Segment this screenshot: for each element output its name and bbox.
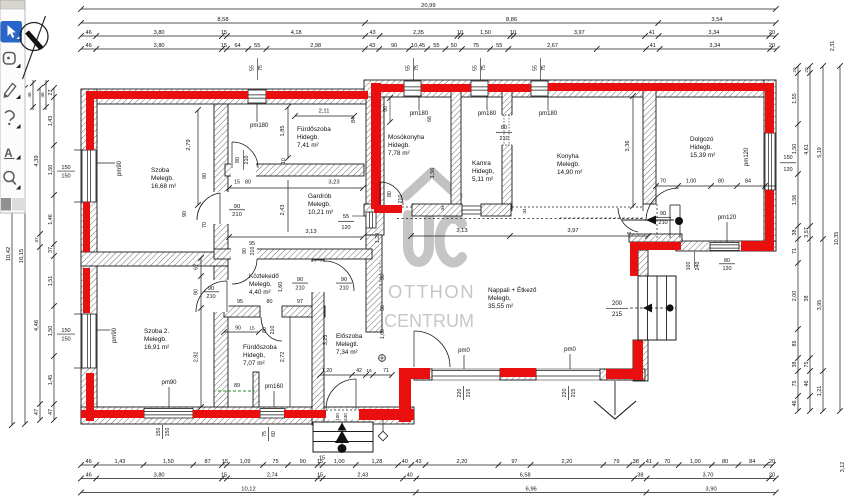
svg-text:85: 85 [792,341,798,347]
svg-text:55: 55 [406,65,412,71]
svg-text:210: 210 [339,286,348,292]
svg-text:3,97: 3,97 [574,30,585,36]
svg-text:1,43: 1,43 [48,116,54,127]
svg-text:3,13: 3,13 [456,228,467,234]
svg-text:15,39 m²: 15,39 m² [690,152,715,159]
svg-text:55: 55 [533,65,539,71]
svg-text:210: 210 [270,326,276,335]
svg-text:1,50: 1,50 [48,165,54,176]
svg-text:215: 215 [612,312,623,318]
svg-text:20,99: 20,99 [421,3,436,9]
svg-text:15: 15 [221,30,227,36]
svg-text:38: 38 [792,362,798,368]
svg-text:20: 20 [804,67,809,73]
svg-text:38: 38 [633,459,639,465]
svg-text:2,92: 2,92 [194,352,200,363]
svg-text:14,90 m²: 14,90 m² [557,169,582,176]
svg-text:20: 20 [769,459,775,465]
svg-text:120: 120 [341,225,350,231]
svg-text:87: 87 [204,459,210,465]
svg-text:90: 90 [660,211,666,217]
svg-text:pm0: pm0 [458,348,470,354]
svg-text:CENTRUM: CENTRUM [384,311,474,331]
svg-text:10,15: 10,15 [19,249,25,264]
svg-text:3,34: 3,34 [709,43,720,49]
svg-text:50: 50 [380,305,386,311]
svg-text:1,20: 1,20 [322,368,333,374]
svg-text:1,00: 1,00 [690,459,701,465]
svg-text:1,28: 1,28 [371,459,382,465]
svg-text:41: 41 [646,459,652,465]
svg-text:43: 43 [369,30,375,36]
svg-text:20: 20 [769,43,775,49]
svg-text:80: 80 [235,157,241,163]
svg-text:Előszoba: Előszoba [336,333,363,340]
svg-text:2,43: 2,43 [357,472,368,478]
svg-text:80: 80 [501,125,507,131]
svg-text:46: 46 [85,459,91,465]
svg-text:150: 150 [61,174,70,180]
svg-text:100: 100 [686,262,692,271]
svg-text:210: 210 [295,286,304,292]
svg-text:15: 15 [249,326,255,332]
svg-text:10,45: 10,45 [411,43,425,49]
svg-text:215: 215 [466,389,472,398]
svg-text:15: 15 [317,472,323,478]
svg-text:150: 150 [156,428,162,437]
svg-text:90: 90 [202,173,208,179]
svg-text:4,18: 4,18 [291,30,302,36]
svg-text:7,07 m²: 7,07 m² [243,360,265,367]
svg-text:3,34: 3,34 [708,30,719,36]
svg-text:3,90: 3,90 [705,486,716,492]
svg-text:89: 89 [234,383,240,389]
svg-text:pm90: pm90 [161,380,177,386]
svg-text:100: 100 [335,413,340,421]
svg-text:38: 38 [804,296,810,302]
svg-text:2,11: 2,11 [319,109,330,115]
svg-text:38: 38 [637,472,643,478]
svg-text:pm180: pm180 [250,123,269,129]
svg-text:3,80: 3,80 [154,30,165,36]
svg-text:20: 20 [769,472,775,478]
svg-text:80: 80 [718,179,724,185]
svg-text:2,72: 2,72 [280,352,286,363]
svg-text:38: 38 [792,230,798,236]
svg-text:240: 240 [343,413,348,421]
svg-text:1,45: 1,45 [48,375,54,386]
svg-text:1,55: 1,55 [792,93,798,104]
svg-text:Gardrób: Gardrób [308,193,332,200]
svg-text:66: 66 [427,116,433,122]
svg-text:10: 10 [281,158,287,164]
svg-text:80: 80 [245,180,251,186]
svg-text:4,40 m²: 4,40 m² [249,289,271,296]
svg-text:Kamra: Kamra [472,160,491,167]
svg-text:Szoba: Szoba [151,167,170,174]
svg-text:40: 40 [407,472,413,478]
svg-text:15: 15 [221,472,227,478]
svg-text:4,61: 4,61 [804,144,810,155]
svg-text:1,51: 1,51 [48,276,54,287]
svg-text:70: 70 [660,179,666,185]
svg-text:0: 0 [627,231,633,234]
svg-text:90: 90 [194,289,200,295]
svg-text:10: 10 [457,30,463,36]
svg-text:90: 90 [234,204,240,210]
svg-text:10,21 m²: 10,21 m² [308,209,333,216]
svg-text:3,97: 3,97 [567,228,578,234]
svg-text:pm120: pm120 [718,215,737,221]
svg-text:210: 210 [658,220,667,226]
svg-text:15: 15 [221,43,227,49]
svg-text:1,46: 1,46 [48,214,54,225]
svg-text:1,60: 1,60 [278,282,284,293]
svg-text:90: 90 [391,43,397,49]
svg-text:75: 75 [262,431,268,437]
svg-text:3,13: 3,13 [305,229,316,235]
svg-text:Konyha: Konyha [557,153,579,160]
svg-text:210: 210 [499,136,508,142]
svg-text:pm160: pm160 [265,384,284,390]
svg-text:Szoba 2.: Szoba 2. [144,328,169,335]
svg-text:2,20: 2,20 [561,459,572,465]
svg-text:Dolgozó: Dolgozó [690,136,714,143]
svg-text:10: 10 [510,30,516,36]
svg-text:75: 75 [272,459,278,465]
svg-text:75: 75 [258,65,264,71]
svg-text:210: 210 [250,247,256,256]
svg-text:pm90: pm90 [117,160,123,176]
svg-text:2,43: 2,43 [280,205,286,216]
svg-text:4,46: 4,46 [34,320,40,331]
svg-text:16,91 m²: 16,91 m² [144,344,169,351]
svg-text:75: 75 [414,65,420,71]
svg-text:1,09: 1,09 [240,459,251,465]
svg-text:71: 71 [792,248,798,254]
svg-text:37: 37 [48,247,54,253]
svg-text:46: 46 [804,381,810,387]
svg-text:1,00: 1,00 [334,459,345,465]
svg-text:75: 75 [541,65,547,71]
svg-text:Hidegb.: Hidegb. [690,144,712,151]
svg-text:200: 200 [612,301,623,307]
svg-text:80: 80 [262,327,268,333]
svg-text:210: 210 [232,212,242,218]
svg-text:210: 210 [398,195,404,204]
svg-text:75: 75 [481,65,487,71]
svg-text:1,29: 1,29 [375,233,381,243]
svg-text:47: 47 [34,409,40,415]
svg-text:42: 42 [356,368,362,374]
svg-text:215: 215 [571,389,577,398]
svg-text:46: 46 [40,92,46,98]
svg-text:8,86: 8,86 [506,17,517,23]
svg-text:3,70: 3,70 [702,472,713,478]
svg-text:1,50: 1,50 [480,30,491,36]
svg-text:1,43: 1,43 [114,459,125,465]
svg-text:80: 80 [387,191,393,197]
svg-text:20: 20 [792,67,797,73]
svg-text:80: 80 [722,459,728,465]
svg-text:8,58: 8,58 [217,17,228,23]
svg-text:90: 90 [242,248,248,254]
svg-text:90: 90 [208,286,214,292]
svg-text:84: 84 [749,459,755,465]
svg-text:3,25: 3,25 [323,335,329,346]
svg-text:2,35: 2,35 [413,30,424,36]
svg-text:46: 46 [85,30,91,36]
svg-text:1,56: 1,56 [792,195,798,206]
svg-text:90: 90 [300,459,306,465]
svg-text:210: 210 [244,156,250,165]
svg-text:1,85: 1,85 [280,126,286,137]
svg-text:5,19: 5,19 [817,147,823,158]
svg-text:75: 75 [473,43,479,49]
svg-text:Hidegb,: Hidegb, [472,168,494,175]
svg-text:1,50: 1,50 [792,144,798,155]
svg-text:90: 90 [380,274,386,280]
svg-text:pm120: pm120 [744,147,750,166]
svg-text:240: 240 [695,262,701,271]
svg-text:5,11 m²: 5,11 m² [472,176,493,183]
svg-text:34: 34 [522,208,528,214]
svg-text:3,80: 3,80 [154,43,165,49]
svg-text:3,57: 3,57 [804,227,810,238]
svg-text:Melegb.: Melegb. [308,201,331,208]
svg-text:150: 150 [61,328,70,334]
svg-text:4,39: 4,39 [34,155,40,166]
svg-text:97: 97 [511,459,517,465]
svg-text:2,79: 2,79 [186,139,192,150]
svg-text:220: 220 [562,389,568,398]
svg-text:90: 90 [235,326,241,332]
svg-text:2,00: 2,00 [792,291,798,302]
svg-text:2,74: 2,74 [267,472,278,478]
svg-text:Hidegb.: Hidegb. [388,142,410,149]
svg-text:46: 46 [85,43,91,49]
svg-text:46: 46 [85,472,91,478]
svg-text:7,41 m²: 7,41 m² [297,142,319,149]
svg-text:27: 27 [48,90,54,96]
svg-text:OTTHON: OTTHON [388,281,475,302]
svg-text:150: 150 [61,337,70,343]
svg-text:10,42: 10,42 [6,247,12,262]
svg-text:16,68 m²: 16,68 m² [151,183,176,190]
svg-text:55: 55 [433,43,439,49]
svg-text:Közlekedő: Közlekedő [249,273,279,280]
svg-text:90: 90 [182,211,188,217]
svg-text:Melegb.: Melegb. [144,336,167,343]
svg-text:Nappali + Étkező: Nappali + Étkező [488,285,537,294]
svg-text:120: 120 [723,266,732,272]
svg-text:70: 70 [664,459,670,465]
svg-text:55: 55 [250,65,256,71]
svg-text:37: 37 [34,237,40,243]
svg-text:10,35: 10,35 [834,232,840,246]
svg-text:50: 50 [451,43,457,49]
svg-text:Mosókonyha: Mosókonyha [388,134,425,141]
svg-text:Melegb.: Melegb. [557,161,580,168]
svg-text:55: 55 [343,214,349,220]
svg-text:150: 150 [165,428,171,437]
svg-text:150: 150 [61,165,70,171]
svg-text:Fürdőszoba: Fürdőszoba [297,126,331,133]
svg-text:43: 43 [369,43,375,49]
svg-text:95: 95 [249,241,255,247]
svg-text:150: 150 [783,155,792,161]
svg-text:Fürdőszoba: Fürdőszoba [243,344,277,351]
svg-text:3,23: 3,23 [328,180,339,186]
svg-text:62: 62 [194,264,200,270]
svg-text:55: 55 [496,43,502,49]
svg-text:97: 97 [297,299,303,305]
svg-text:Hidegb.: Hidegb. [297,134,319,141]
svg-text:15: 15 [234,180,240,186]
svg-text:7,34 m²: 7,34 m² [336,349,358,356]
svg-text:1,00: 1,00 [686,179,697,185]
svg-text:90: 90 [341,277,347,283]
svg-text:70: 70 [202,222,208,228]
svg-text:55: 55 [254,43,260,49]
svg-text:40: 40 [402,459,408,465]
svg-text:120: 120 [783,167,792,173]
svg-text:2,67: 2,67 [547,43,558,49]
svg-text:2,20: 2,20 [457,459,468,465]
svg-text:80: 80 [724,258,730,264]
svg-text:7,78 m²: 7,78 m² [388,150,410,157]
svg-text:84: 84 [351,117,357,123]
svg-text:47: 47 [48,409,54,415]
svg-text:55: 55 [473,65,479,71]
svg-text:1,56: 1,56 [430,168,436,179]
svg-text:43: 43 [415,459,421,465]
svg-text:71: 71 [383,368,389,374]
svg-text:41: 41 [649,30,655,36]
svg-text:3,80: 3,80 [154,472,165,478]
svg-text:220: 220 [457,389,463,398]
svg-text:3,36: 3,36 [625,141,631,152]
svg-text:2,98: 2,98 [310,43,321,49]
svg-text:Melegtl.: Melegtl. [336,341,359,348]
svg-text:90: 90 [297,277,303,283]
svg-text:1,21: 1,21 [817,386,823,397]
svg-text:1,50: 1,50 [48,326,54,337]
svg-text:Hidegb,: Hidegb, [243,352,265,359]
svg-text:1,50: 1,50 [163,459,174,465]
svg-text:1,60: 1,60 [380,329,386,339]
svg-text:Melegb.: Melegb. [249,281,272,288]
svg-text:pm180: pm180 [410,111,429,117]
svg-text:46: 46 [792,401,798,407]
svg-text:pm0: pm0 [564,347,576,353]
svg-text:16: 16 [366,368,372,374]
svg-text:3,54: 3,54 [711,17,723,23]
svg-text:35,55 m²: 35,55 m² [488,303,513,310]
svg-text:60: 60 [271,431,277,437]
svg-text:Melegb,: Melegb, [488,295,511,302]
svg-text:15: 15 [222,459,228,465]
svg-text:20: 20 [769,30,775,36]
svg-text:pm180: pm180 [539,111,558,117]
svg-text:10,12: 10,12 [241,486,256,492]
svg-text:90: 90 [383,106,389,112]
svg-text:2,31: 2,31 [830,41,836,52]
svg-text:pm90: pm90 [112,327,118,343]
svg-text:64: 64 [234,43,240,49]
svg-text:pm180: pm180 [478,111,497,117]
svg-text:Melegb.: Melegb. [151,175,174,182]
svg-text:15: 15 [317,459,323,465]
svg-text:79: 79 [613,459,619,465]
svg-text:75: 75 [792,381,798,387]
svg-text:6,58: 6,58 [520,472,531,478]
svg-text:210: 210 [206,294,215,300]
svg-text:3,12: 3,12 [840,462,846,473]
svg-text:75: 75 [804,362,810,368]
svg-text:80: 80 [267,299,273,305]
svg-text:6,96: 6,96 [526,486,537,492]
svg-text:84: 84 [745,179,751,185]
svg-text:34: 34 [440,205,446,211]
svg-text:3,95: 3,95 [817,300,823,311]
svg-text:41: 41 [650,43,656,49]
svg-text:46: 46 [27,92,33,98]
svg-text:95: 95 [237,299,243,305]
